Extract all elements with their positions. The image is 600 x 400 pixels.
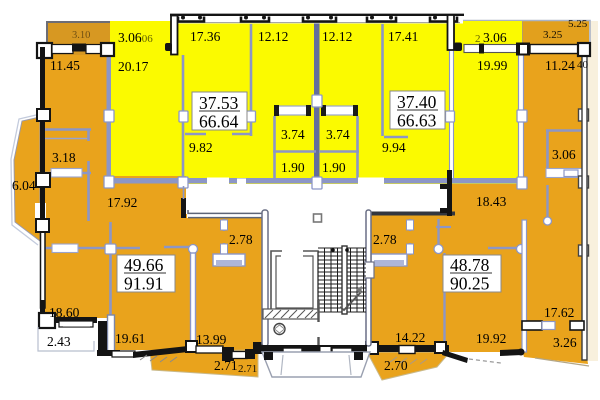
svg-text:19.92: 19.92 bbox=[476, 331, 506, 346]
svg-text:1.90: 1.90 bbox=[281, 160, 305, 175]
svg-text:17.41: 17.41 bbox=[388, 29, 418, 44]
svg-text:3.06: 3.06 bbox=[118, 30, 142, 45]
svg-text:3.74: 3.74 bbox=[326, 127, 350, 142]
svg-text:2.43: 2.43 bbox=[47, 334, 71, 349]
svg-text:2.70: 2.70 bbox=[384, 358, 408, 373]
svg-text:6.04: 6.04 bbox=[12, 178, 36, 193]
svg-text:19.99: 19.99 bbox=[477, 58, 508, 73]
svg-text:19.61: 19.61 bbox=[115, 331, 145, 346]
svg-text:18.60: 18.60 bbox=[49, 305, 80, 320]
svg-text:17.36: 17.36 bbox=[190, 29, 221, 44]
svg-text:18.43: 18.43 bbox=[476, 194, 507, 209]
svg-text:9.82: 9.82 bbox=[189, 140, 213, 155]
svg-text:40: 40 bbox=[577, 59, 589, 71]
svg-text:5.25: 5.25 bbox=[568, 18, 588, 30]
svg-text:3.06: 3.06 bbox=[483, 30, 507, 45]
svg-text:17.92: 17.92 bbox=[107, 195, 137, 210]
svg-text:90.25: 90.25 bbox=[450, 274, 490, 294]
svg-text:9.94: 9.94 bbox=[382, 140, 406, 155]
svg-text:2.78: 2.78 bbox=[229, 232, 253, 247]
svg-text:3.74: 3.74 bbox=[281, 127, 305, 142]
svg-text:3.25: 3.25 bbox=[543, 29, 563, 41]
svg-text:2.71: 2.71 bbox=[238, 363, 257, 375]
svg-text:2: 2 bbox=[475, 33, 481, 45]
svg-text:49.66: 49.66 bbox=[124, 255, 164, 275]
svg-text:48.78: 48.78 bbox=[450, 255, 490, 275]
svg-text:2.71: 2.71 bbox=[214, 358, 238, 373]
svg-text:91.91: 91.91 bbox=[124, 274, 163, 294]
svg-text:37.53: 37.53 bbox=[199, 93, 239, 113]
svg-text:14.22: 14.22 bbox=[395, 330, 425, 345]
svg-text:1.90: 1.90 bbox=[322, 160, 346, 175]
svg-text:12.12: 12.12 bbox=[258, 29, 288, 44]
svg-text:3.06: 3.06 bbox=[552, 147, 576, 162]
svg-text:17.62: 17.62 bbox=[544, 305, 574, 320]
svg-text:2.78: 2.78 bbox=[373, 232, 397, 247]
svg-text:11.24: 11.24 bbox=[545, 58, 575, 73]
svg-text:13.99: 13.99 bbox=[196, 332, 227, 347]
svg-text:11.45: 11.45 bbox=[50, 58, 80, 73]
svg-text:12.12: 12.12 bbox=[322, 29, 352, 44]
svg-text:66.64: 66.64 bbox=[199, 112, 239, 132]
svg-text:20.17: 20.17 bbox=[118, 59, 149, 74]
svg-text:37.40: 37.40 bbox=[397, 92, 437, 112]
svg-text:3.10: 3.10 bbox=[72, 30, 90, 41]
svg-text:3.26: 3.26 bbox=[553, 335, 577, 350]
svg-text:3.18: 3.18 bbox=[52, 150, 76, 165]
svg-text:66.63: 66.63 bbox=[397, 111, 437, 131]
